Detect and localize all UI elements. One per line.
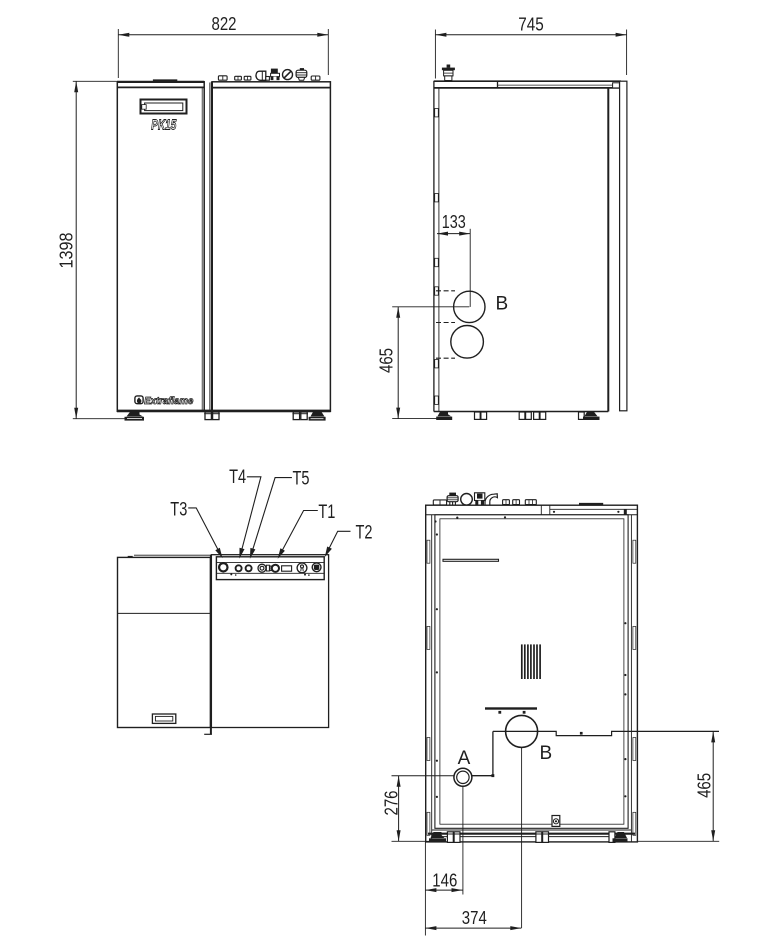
svg-text:B: B	[496, 293, 509, 314]
svg-text:T5: T5	[293, 468, 310, 489]
svg-text:465: 465	[375, 348, 396, 373]
svg-text:T1: T1	[318, 502, 335, 523]
svg-text:PK15: PK15	[151, 117, 177, 133]
svg-text:822: 822	[212, 13, 237, 34]
svg-text:1398: 1398	[56, 233, 77, 269]
svg-text:745: 745	[518, 14, 544, 35]
svg-text:133: 133	[442, 211, 466, 232]
svg-text:Extraflame: Extraflame	[144, 396, 193, 407]
svg-text:276: 276	[380, 791, 401, 816]
svg-text:T4: T4	[229, 467, 246, 488]
svg-text:B: B	[539, 743, 552, 764]
svg-text:374: 374	[462, 907, 487, 928]
svg-text:T3: T3	[170, 499, 187, 520]
svg-text:146: 146	[432, 869, 457, 890]
svg-text:T2: T2	[356, 522, 373, 543]
svg-text:465: 465	[693, 773, 714, 798]
svg-text:A: A	[458, 748, 471, 769]
